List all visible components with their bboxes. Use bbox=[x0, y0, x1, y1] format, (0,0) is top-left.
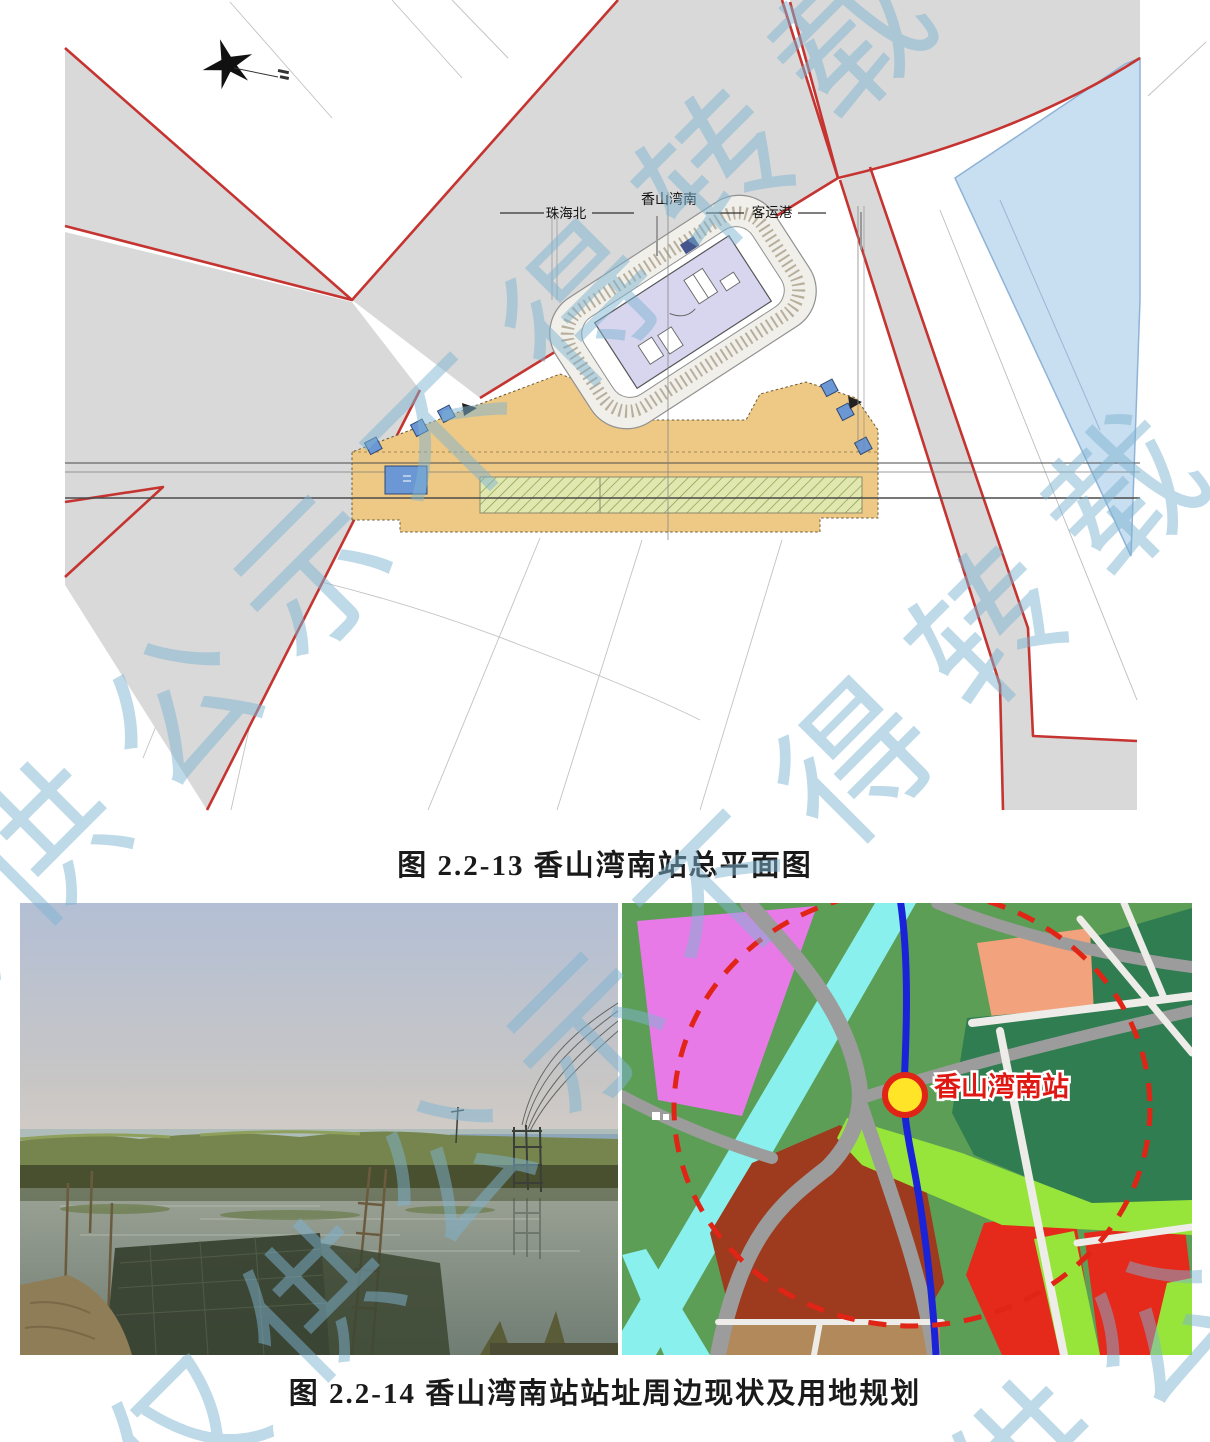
foreground-bank bbox=[490, 1343, 618, 1355]
station-label-xiangshanwannan: 香山湾南 bbox=[641, 191, 697, 208]
fishing-net bbox=[105, 1233, 330, 1355]
site-photo bbox=[20, 903, 618, 1355]
sky bbox=[20, 903, 618, 1143]
document-page: 珠海北 香山湾南 客运港 图 2.2-13 香山湾南站总平面图 bbox=[0, 0, 1210, 1442]
landuse-map: 香山湾南站 bbox=[622, 903, 1192, 1355]
north-compass-icon bbox=[195, 31, 289, 93]
site-plan-figure: 珠海北 香山湾南 客运港 bbox=[0, 0, 1210, 812]
map-station-label: 香山湾南站 bbox=[934, 1071, 1069, 1102]
station-label-keyungang: 客运港 bbox=[752, 204, 793, 220]
station-marker-icon bbox=[885, 1075, 925, 1115]
station-label-zhuhaibei: 珠海北 bbox=[546, 206, 587, 221]
figure-caption-2-2-14: 图 2.2-14 香山湾南站站址周边现状及用地规划 bbox=[0, 1370, 1210, 1412]
figure-caption-2-2-13: 图 2.2-13 香山湾南站总平面图 bbox=[0, 842, 1210, 884]
platform-strip bbox=[480, 477, 862, 513]
